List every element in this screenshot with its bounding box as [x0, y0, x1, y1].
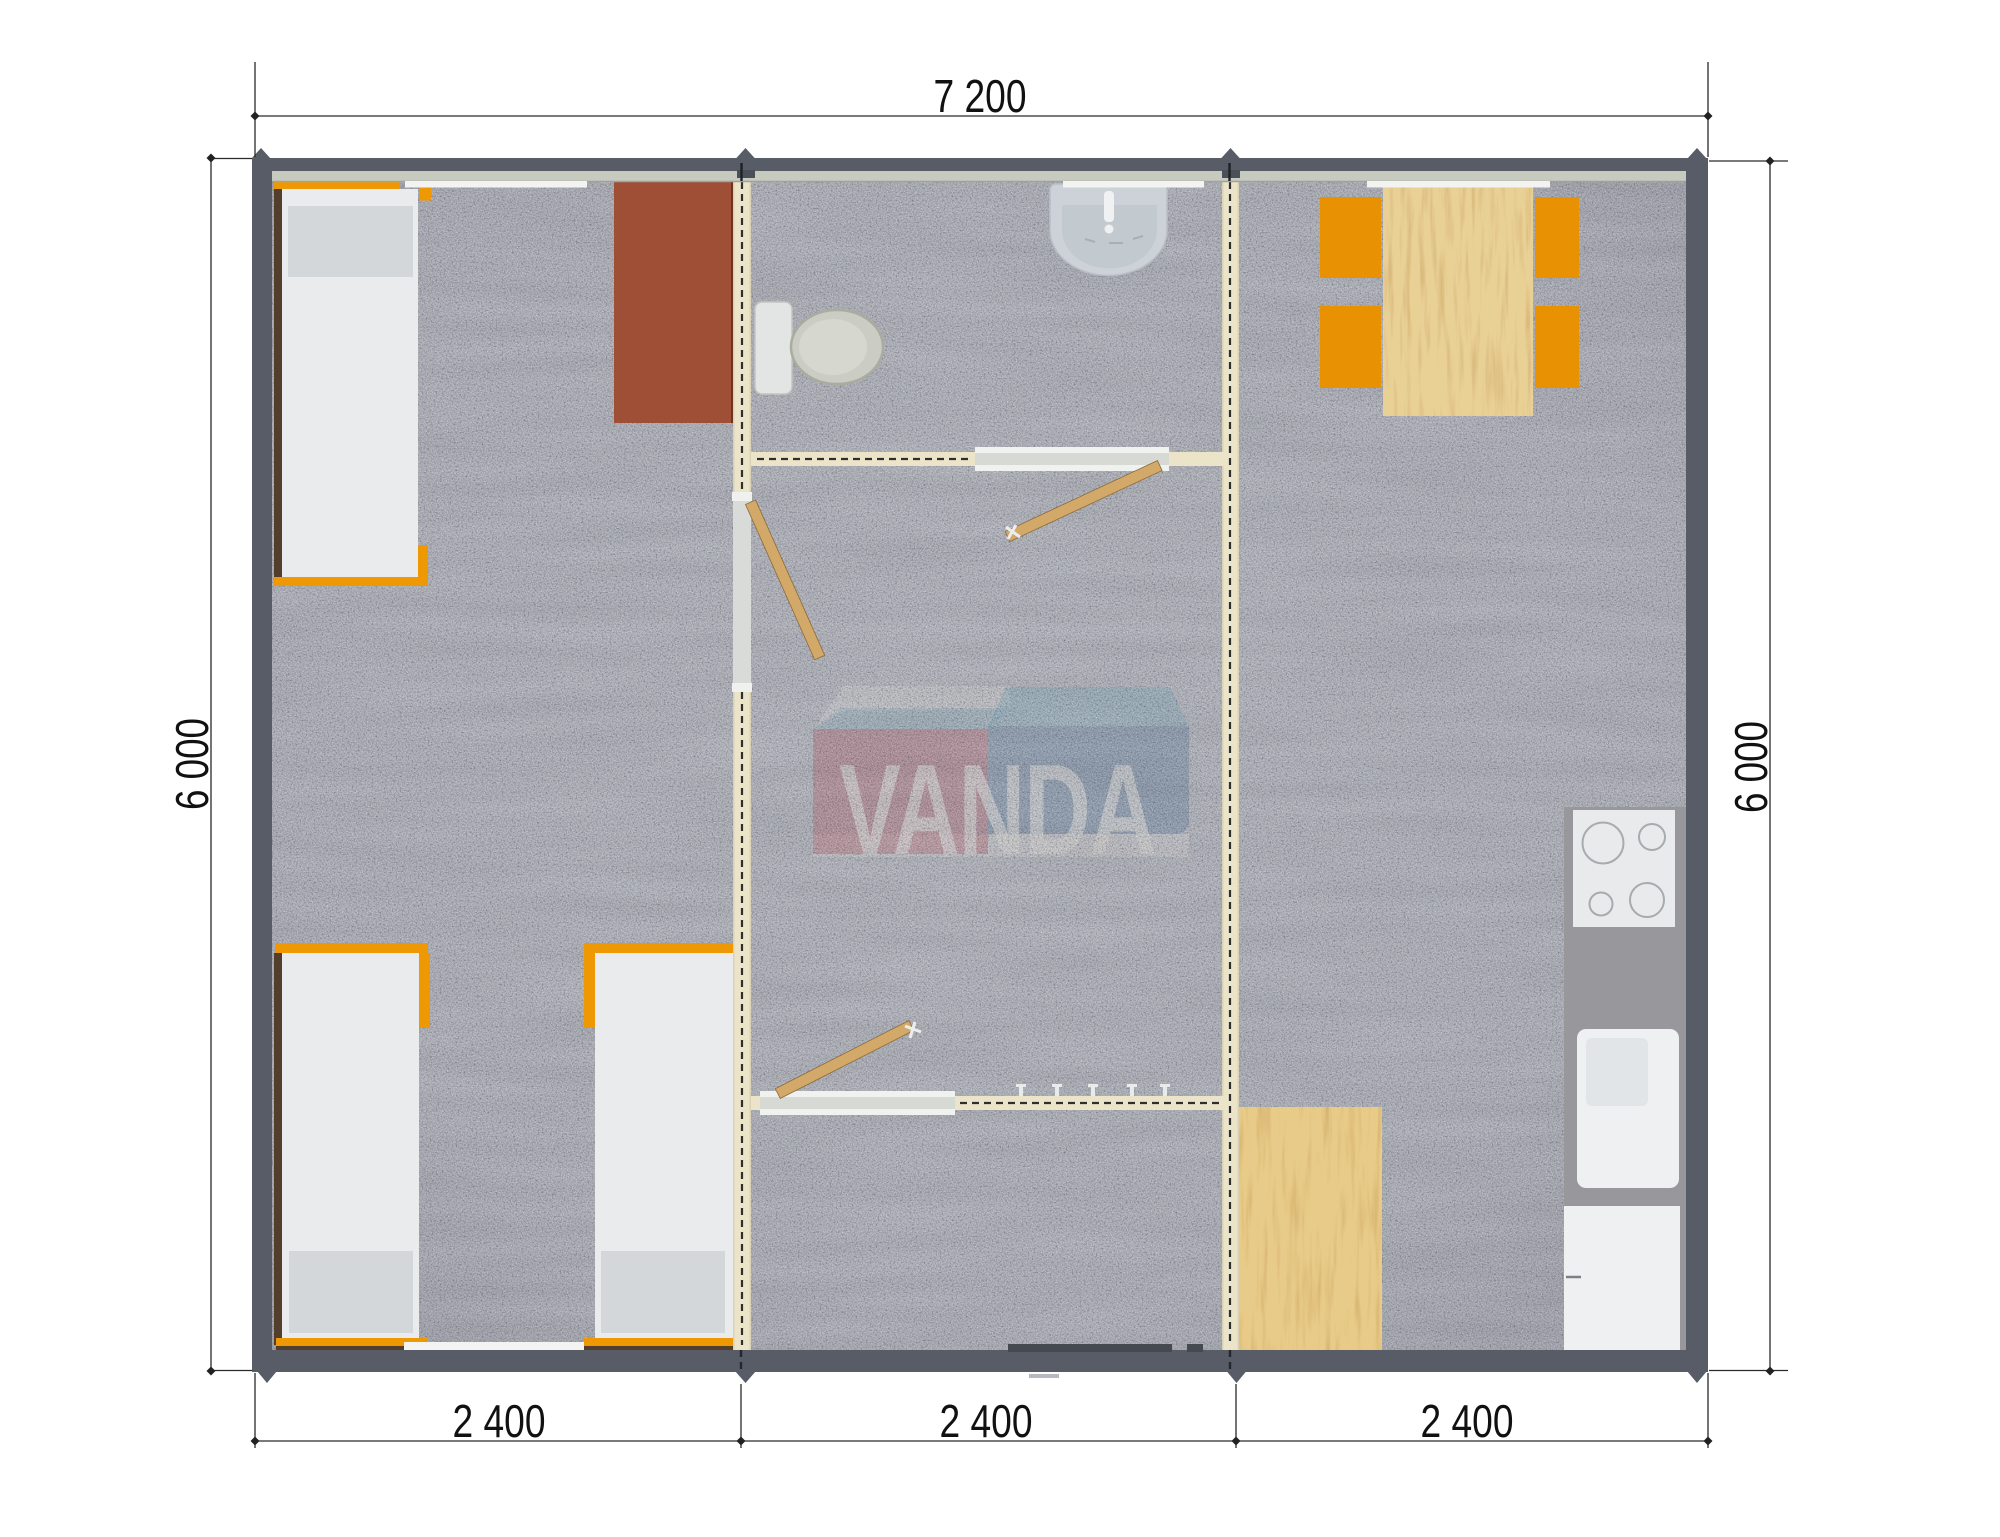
svg-text:7 200: 7 200: [934, 70, 1027, 122]
svg-text:2 400: 2 400: [1421, 1395, 1514, 1447]
svg-text:6 000: 6 000: [1725, 721, 1777, 813]
svg-text:6 000: 6 000: [166, 718, 218, 810]
svg-text:2 400: 2 400: [453, 1395, 546, 1447]
svg-text:2 400: 2 400: [940, 1395, 1033, 1447]
